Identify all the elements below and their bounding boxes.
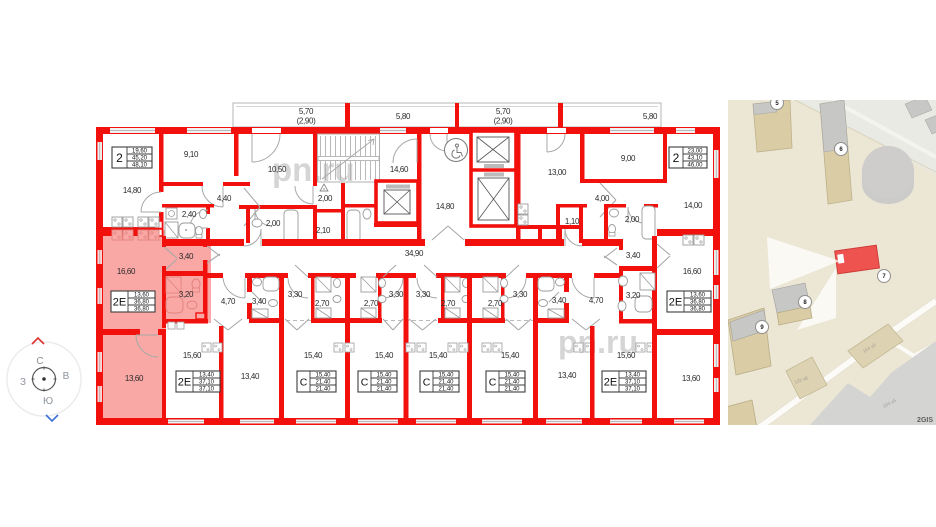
svg-text:2: 2	[673, 151, 680, 165]
svg-text:15,40: 15,40	[429, 351, 448, 360]
svg-text:2,00: 2,00	[318, 194, 333, 203]
svg-text:3,20: 3,20	[179, 290, 194, 299]
svg-text:10,50: 10,50	[268, 165, 287, 174]
svg-text:14,80: 14,80	[123, 186, 142, 195]
svg-text:2Е: 2Е	[178, 376, 191, 388]
svg-text:21,40: 21,40	[315, 380, 331, 386]
svg-text:23,00: 23,00	[687, 149, 703, 155]
svg-text:5,70: 5,70	[496, 107, 511, 116]
svg-text:36,80: 36,80	[134, 307, 150, 313]
svg-text:15,40: 15,40	[504, 373, 520, 379]
svg-text:16,60: 16,60	[683, 267, 702, 276]
svg-text:9,10: 9,10	[184, 150, 199, 159]
svg-text:37,10: 37,10	[625, 380, 641, 386]
svg-text:43,10: 43,10	[687, 156, 703, 162]
svg-text:5,80: 5,80	[643, 112, 658, 121]
svg-text:45,20: 45,20	[132, 156, 148, 162]
svg-text:15,40: 15,40	[376, 373, 392, 379]
svg-text:37,10: 37,10	[625, 387, 641, 393]
svg-text:З: З	[20, 377, 26, 388]
svg-text:13,60: 13,60	[690, 293, 706, 299]
svg-text:В: В	[63, 371, 70, 382]
svg-text:2Е: 2Е	[669, 296, 682, 308]
svg-text:С: С	[423, 376, 431, 388]
svg-text:2,00: 2,00	[266, 219, 281, 228]
svg-text:(2,90): (2,90)	[297, 117, 316, 126]
svg-text:С: С	[36, 356, 43, 367]
svg-text:36,80: 36,80	[134, 300, 150, 306]
svg-text:3,40: 3,40	[552, 296, 567, 305]
svg-text:С: С	[361, 376, 369, 388]
svg-text:(2,90): (2,90)	[494, 117, 513, 126]
svg-text:37,10: 37,10	[199, 387, 215, 393]
svg-text:2Е: 2Е	[604, 376, 617, 388]
svg-text:34,90: 34,90	[405, 249, 424, 258]
svg-text:3,40: 3,40	[626, 251, 641, 260]
svg-text:4,40: 4,40	[217, 194, 232, 203]
svg-text:4,70: 4,70	[221, 297, 236, 306]
svg-text:36,80: 36,80	[690, 300, 706, 306]
svg-text:14,00: 14,00	[684, 201, 703, 210]
svg-text:3,40: 3,40	[252, 297, 267, 306]
svg-text:21,40: 21,40	[376, 387, 392, 393]
svg-text:21,40: 21,40	[438, 380, 454, 386]
svg-text:2: 2	[116, 151, 123, 165]
svg-text:15,40: 15,40	[438, 373, 454, 379]
svg-text:1,10: 1,10	[565, 217, 580, 226]
svg-text:13,40: 13,40	[241, 372, 260, 381]
svg-text:5,70: 5,70	[299, 107, 314, 116]
svg-text:37,10: 37,10	[199, 380, 215, 386]
svg-text:5,80: 5,80	[396, 112, 411, 121]
svg-text:21,40: 21,40	[376, 380, 392, 386]
svg-text:2,70: 2,70	[488, 299, 503, 308]
svg-text:3,30: 3,30	[389, 290, 404, 299]
svg-text:21,40: 21,40	[315, 387, 331, 393]
svg-text:13,00: 13,00	[548, 168, 567, 177]
svg-text:9,00: 9,00	[621, 154, 636, 163]
svg-text:2,70: 2,70	[441, 299, 456, 308]
svg-text:36,80: 36,80	[690, 307, 706, 313]
svg-text:2,10: 2,10	[316, 226, 331, 235]
svg-text:15,60: 15,60	[617, 351, 636, 360]
svg-text:13,60: 13,60	[682, 374, 701, 383]
svg-text:Ю: Ю	[43, 396, 53, 407]
svg-text:С: С	[300, 376, 308, 388]
svg-text:3,30: 3,30	[288, 290, 303, 299]
svg-text:2,70: 2,70	[364, 299, 379, 308]
svg-text:14,60: 14,60	[390, 165, 409, 174]
svg-text:13,60: 13,60	[125, 374, 144, 383]
svg-text:15,40: 15,40	[375, 351, 394, 360]
svg-text:15,40: 15,40	[501, 351, 520, 360]
svg-text:16,60: 16,60	[117, 267, 136, 276]
svg-text:21,40: 21,40	[504, 380, 520, 386]
svg-text:4,00: 4,00	[595, 194, 610, 203]
svg-text:46,00: 46,00	[687, 163, 703, 169]
svg-text:3,20: 3,20	[626, 291, 641, 300]
svg-text:15,60: 15,60	[183, 351, 202, 360]
svg-text:15,40: 15,40	[315, 373, 331, 379]
svg-text:48,10: 48,10	[132, 163, 148, 169]
svg-text:4,70: 4,70	[589, 296, 604, 305]
svg-text:2GIS: 2GIS	[917, 417, 933, 424]
svg-text:2,40: 2,40	[182, 210, 197, 219]
svg-text:19,60: 19,60	[132, 149, 148, 155]
svg-text:2,70: 2,70	[315, 299, 330, 308]
svg-text:С: С	[489, 376, 497, 388]
svg-text:21,40: 21,40	[504, 387, 520, 393]
svg-text:3,30: 3,30	[513, 290, 528, 299]
svg-text:2,00: 2,00	[625, 215, 640, 224]
svg-text:13,40: 13,40	[625, 373, 641, 379]
svg-text:13,40: 13,40	[199, 373, 215, 379]
svg-text:15,40: 15,40	[304, 351, 323, 360]
svg-text:13,40: 13,40	[558, 371, 577, 380]
svg-text:3,40: 3,40	[179, 252, 194, 261]
svg-text:13,60: 13,60	[134, 293, 150, 299]
svg-text:2Е: 2Е	[113, 296, 126, 308]
svg-text:21,40: 21,40	[438, 387, 454, 393]
svg-text:3,30: 3,30	[416, 290, 431, 299]
svg-text:14,80: 14,80	[436, 202, 455, 211]
